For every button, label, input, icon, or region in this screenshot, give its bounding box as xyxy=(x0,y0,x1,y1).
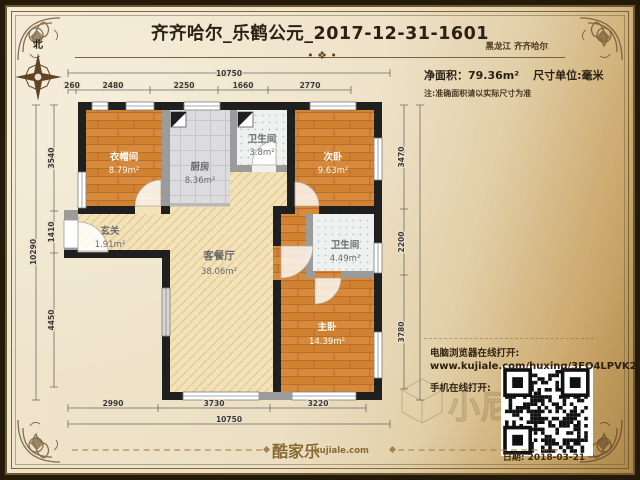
svg-text:260: 260 xyxy=(64,81,80,90)
mobile-open-label: 手机在线打开: xyxy=(430,380,491,394)
svg-text:8.36m²: 8.36m² xyxy=(185,176,216,186)
svg-text:3.8m²: 3.8m² xyxy=(249,148,274,158)
svg-text:玄关: 玄关 xyxy=(100,225,120,237)
svg-text:客餐厅: 客餐厅 xyxy=(202,249,235,262)
svg-text:2480: 2480 xyxy=(103,81,124,90)
footer-dash-left xyxy=(72,449,262,451)
kitchen-threshold xyxy=(170,203,230,207)
svg-text:4.49m²: 4.49m² xyxy=(330,254,361,264)
brand-domain: kujiale.com xyxy=(314,446,369,456)
svg-text:8.79m²: 8.79m² xyxy=(109,166,140,176)
svg-text:3220: 3220 xyxy=(308,399,329,408)
svg-text:14.39m²: 14.39m² xyxy=(309,337,345,347)
svg-text:3470: 3470 xyxy=(397,147,406,168)
living-floor xyxy=(170,206,273,392)
floorplan-page: 齐齐哈尔_乐鹤公元_2017-12-31-1601 黑龙江 齐齐哈尔 • ❖ •… xyxy=(0,0,640,480)
plan-url: www.kujiale.com/huxing/3FO4LPVK28OT xyxy=(430,361,640,372)
svg-text:3780: 3780 xyxy=(397,322,406,343)
svg-text:2200: 2200 xyxy=(397,232,406,253)
svg-text:38.06m²: 38.06m² xyxy=(201,267,237,277)
svg-text:10750: 10750 xyxy=(216,69,242,78)
date-label: 日期: 2018-03-21 xyxy=(498,450,590,463)
svg-text:2990: 2990 xyxy=(103,399,124,408)
svg-text:1410: 1410 xyxy=(47,222,56,243)
svg-text:次卧: 次卧 xyxy=(323,151,343,163)
svg-text:2250: 2250 xyxy=(174,81,195,90)
svg-text:2770: 2770 xyxy=(300,81,321,90)
svg-text:卫生间: 卫生间 xyxy=(331,239,360,251)
floor-plan: 小尼 xyxy=(0,0,640,480)
compass-icon: 北 xyxy=(15,38,62,101)
svg-text:3730: 3730 xyxy=(204,399,225,408)
svg-text:1.91m²: 1.91m² xyxy=(95,240,126,250)
qr-code xyxy=(501,366,593,456)
svg-text:4450: 4450 xyxy=(47,310,56,331)
svg-text:主卧: 主卧 xyxy=(317,321,337,333)
svg-text:10290: 10290 xyxy=(29,239,38,265)
footer-dash-right xyxy=(398,449,558,451)
svg-text:北: 北 xyxy=(33,38,43,51)
svg-text:衣帽间: 衣帽间 xyxy=(110,151,139,163)
svg-text:1660: 1660 xyxy=(233,81,254,90)
brand-logo: 酷家乐 xyxy=(272,438,320,462)
svg-text:厨房: 厨房 xyxy=(190,161,209,173)
pc-open-label: 电脑浏览器在线打开: xyxy=(430,345,519,359)
svg-text:9.63m²: 9.63m² xyxy=(318,166,349,176)
svg-text:3540: 3540 xyxy=(47,148,56,169)
svg-text:10750: 10750 xyxy=(216,415,242,424)
bedroom-master-floor xyxy=(281,214,306,392)
svg-text:卫生间: 卫生间 xyxy=(248,133,277,145)
links-divider xyxy=(424,338,594,339)
